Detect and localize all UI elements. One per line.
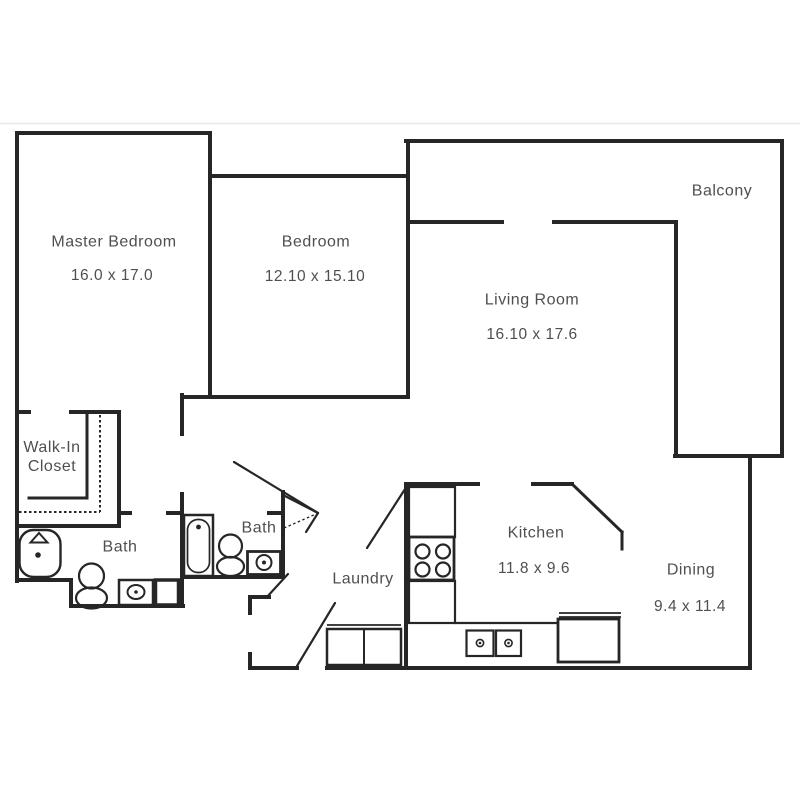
room-label-laundry: Laundry [332, 570, 393, 589]
master-bath-fixtures [20, 530, 179, 609]
bifold-door-leaf-a [283, 495, 318, 513]
bifold-door-swing-dotted [284, 514, 316, 528]
laundry-fixtures [327, 625, 401, 665]
room-label-bedroom: Bedroom [282, 233, 350, 252]
room-label-living-room: Living Room [485, 291, 579, 310]
kitchen-angled-wall [572, 484, 622, 549]
room-label-bath: Bath [242, 519, 277, 538]
linen-cabinet [156, 580, 179, 605]
room-label-balcony: Balcony [692, 182, 752, 201]
laundry-door-leaf [367, 486, 407, 548]
room-dims-dining: 9.4 x 11.4 [654, 598, 726, 616]
floor-plan-drawing [0, 0, 800, 800]
toilet-base [217, 557, 244, 576]
room-label-master-bedroom: Master Bedroom [51, 233, 176, 252]
tub-drain-dot [196, 525, 201, 530]
room-dims-kitchen: 11.8 x 9.6 [498, 560, 570, 578]
door-swing-lines [234, 462, 407, 666]
entry-door-leaf [297, 603, 335, 666]
stove-burner [436, 563, 450, 577]
base-cabinet [409, 581, 455, 623]
sink-drain-dot [262, 561, 266, 565]
pantry-cabinet [409, 487, 455, 537]
toilet-fixture [79, 564, 104, 589]
stove-burner [416, 545, 430, 559]
room-dims-living-room: 16.10 x 17.6 [486, 326, 577, 344]
floor-plan-page: Master Bedroom 16.0 x 17.0 Bedroom 12.10… [0, 0, 800, 800]
refrigerator-fixture [558, 619, 619, 662]
shower-drain-triangle [31, 533, 48, 543]
shower-drain-dot [35, 552, 41, 558]
room-label-walk-in-closet: Walk-In Closet [13, 438, 91, 476]
sink-drain-dot [134, 590, 138, 594]
exterior-and-interior-walls [17, 133, 782, 668]
room-label-dining: Dining [667, 561, 715, 580]
room-label-master-bath: Bath [103, 538, 138, 557]
room-dims-master-bedroom: 16.0 x 17.0 [71, 267, 153, 285]
toilet-fixture [219, 535, 242, 558]
room-label-kitchen: Kitchen [508, 524, 565, 543]
stove-burner [416, 563, 430, 577]
stove-burner [436, 545, 450, 559]
room-dims-bedroom: 12.10 x 15.10 [265, 268, 365, 286]
